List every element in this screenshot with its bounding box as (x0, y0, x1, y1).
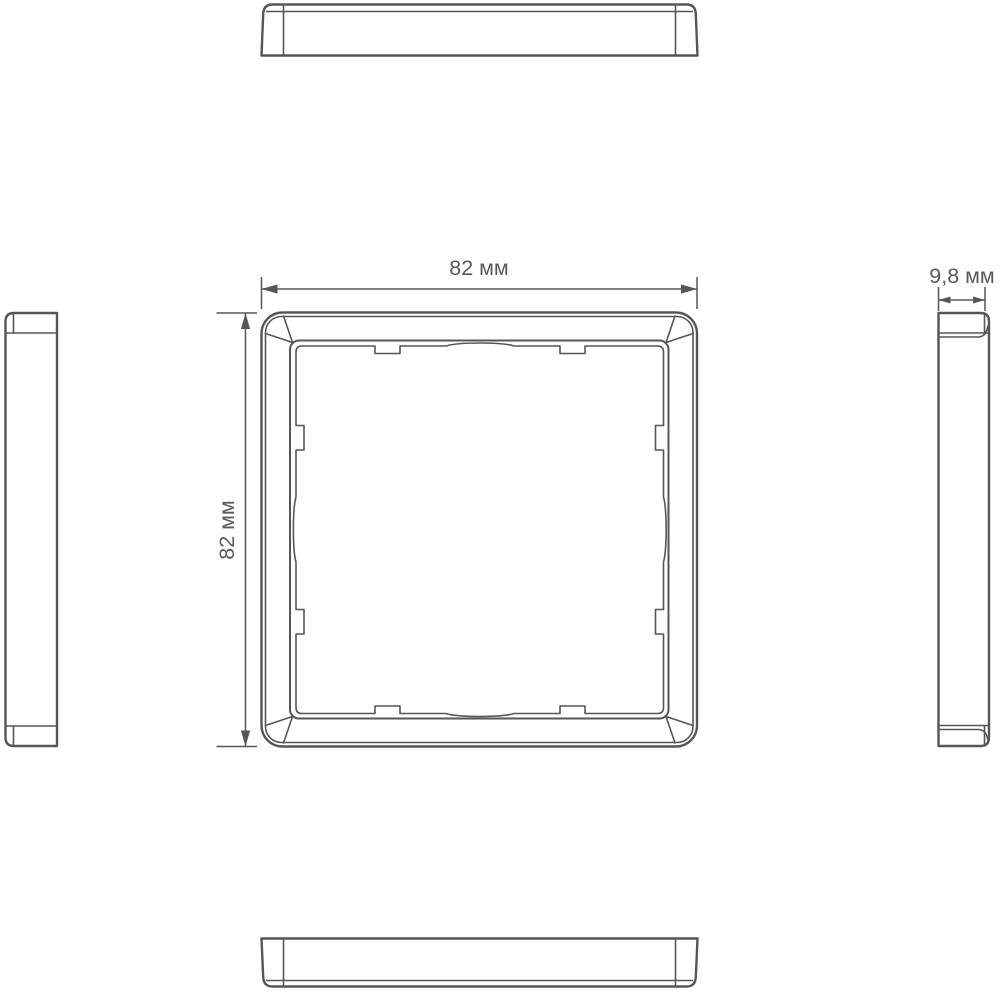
dimension-depth: 9,8 мм (929, 264, 994, 311)
bevel-bottom-left (266, 717, 293, 744)
width-arrow-left (262, 284, 278, 293)
bevel-top-left (266, 316, 293, 343)
dimension-height: 82 мм (215, 313, 257, 747)
depth-arrow-right (973, 297, 985, 304)
height-dimension-label: 82 мм (215, 500, 239, 559)
drawing-canvas: 82 мм 82 мм 9,8 мм (0, 0, 1000, 994)
front-view-outer-edge-inner-line (266, 317, 694, 743)
width-dimension-label: 82 мм (449, 256, 508, 280)
right-view-outline (939, 313, 990, 746)
height-arrow-bottom (241, 731, 250, 747)
width-arrow-right (681, 284, 697, 293)
top-view (262, 5, 698, 56)
right-view-top-chamfer-inner (939, 326, 988, 337)
height-arrow-top (241, 313, 250, 329)
front-view-outer-edge (262, 313, 698, 747)
depth-arrow-left (939, 297, 951, 304)
front-view-corner-bevels (266, 316, 694, 743)
bevel-top-right (666, 316, 693, 343)
left-view-outline (6, 313, 58, 746)
right-view (939, 313, 990, 746)
depth-dimension-label: 9,8 мм (929, 264, 994, 288)
dimension-width: 82 мм (262, 256, 698, 309)
front-view-seat-contour (293, 343, 666, 717)
front-view-aperture-edge (290, 341, 669, 719)
front-view (262, 313, 698, 747)
right-view-bottom-chamfer-inner (939, 730, 988, 741)
bottom-view-outline (262, 939, 698, 987)
left-view (6, 313, 58, 746)
bevel-bottom-right (666, 717, 693, 744)
frame-orthographic-drawing: 82 мм 82 мм 9,8 мм (0, 0, 1000, 994)
bottom-view (262, 939, 698, 987)
